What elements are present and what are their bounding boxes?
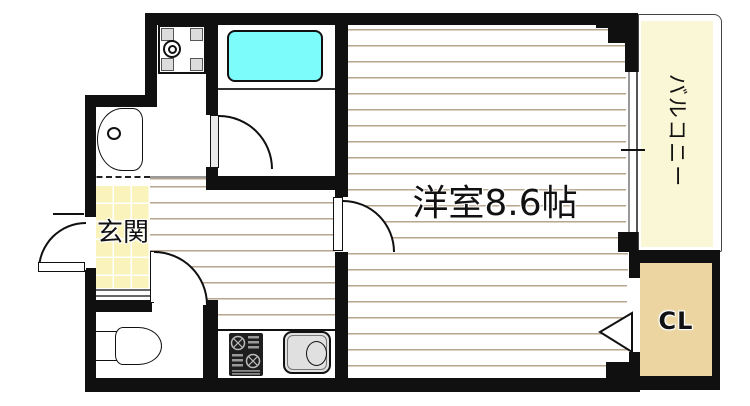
- washbasin: [97, 108, 143, 171]
- wall: [335, 13, 348, 197]
- pan-corner: [190, 28, 203, 41]
- step-boundary-dashed-line: [87, 176, 150, 178]
- wall: [625, 43, 638, 72]
- bathtub: [227, 30, 323, 82]
- bifold-door: [598, 311, 634, 354]
- wall: [85, 95, 96, 217]
- toilet-bowl: [115, 327, 162, 365]
- bathroom-door-leaf: [210, 115, 219, 168]
- toilet-tank: [95, 331, 117, 361]
- entrance-label: 玄関: [96, 219, 150, 248]
- entrance-step-line: [96, 295, 150, 297]
- washing-machine-pan: [158, 25, 206, 74]
- wall: [85, 268, 96, 392]
- bath-platform-line: [218, 88, 335, 90]
- floorplan: バルコニー CL: [0, 0, 750, 406]
- entrance-door-leaf: [38, 262, 85, 272]
- bathroom-door-arc: [219, 115, 273, 169]
- balcony-label: バルコニー: [666, 61, 688, 201]
- wall: [85, 378, 640, 392]
- closet-label: CL: [640, 308, 712, 334]
- wall: [206, 176, 347, 190]
- sink-drain-icon: [306, 341, 327, 366]
- pan-corner: [161, 58, 174, 71]
- main-room-label: 洋室8.6帖: [400, 184, 590, 224]
- window-pane-line: [628, 72, 630, 232]
- pan-corner: [190, 58, 203, 71]
- drain-icon: [107, 127, 121, 140]
- wall: [206, 13, 218, 115]
- entrance-step-line: [96, 289, 150, 291]
- wall: [335, 252, 348, 392]
- kitchen-sink: [283, 331, 331, 374]
- wall: [145, 13, 638, 25]
- washroom-boundary-line: [150, 176, 206, 178]
- gas-stove: [229, 333, 263, 376]
- drain-icon: [168, 45, 177, 54]
- wall: [608, 25, 638, 43]
- wall: [618, 232, 640, 252]
- window-center-tick: [621, 149, 645, 151]
- window-pane-line: [636, 72, 638, 232]
- entrance-frame-tick: [53, 213, 84, 215]
- wall: [85, 300, 152, 312]
- wall: [145, 13, 157, 107]
- wall: [203, 300, 218, 392]
- main-room-door-leaf: [333, 197, 343, 251]
